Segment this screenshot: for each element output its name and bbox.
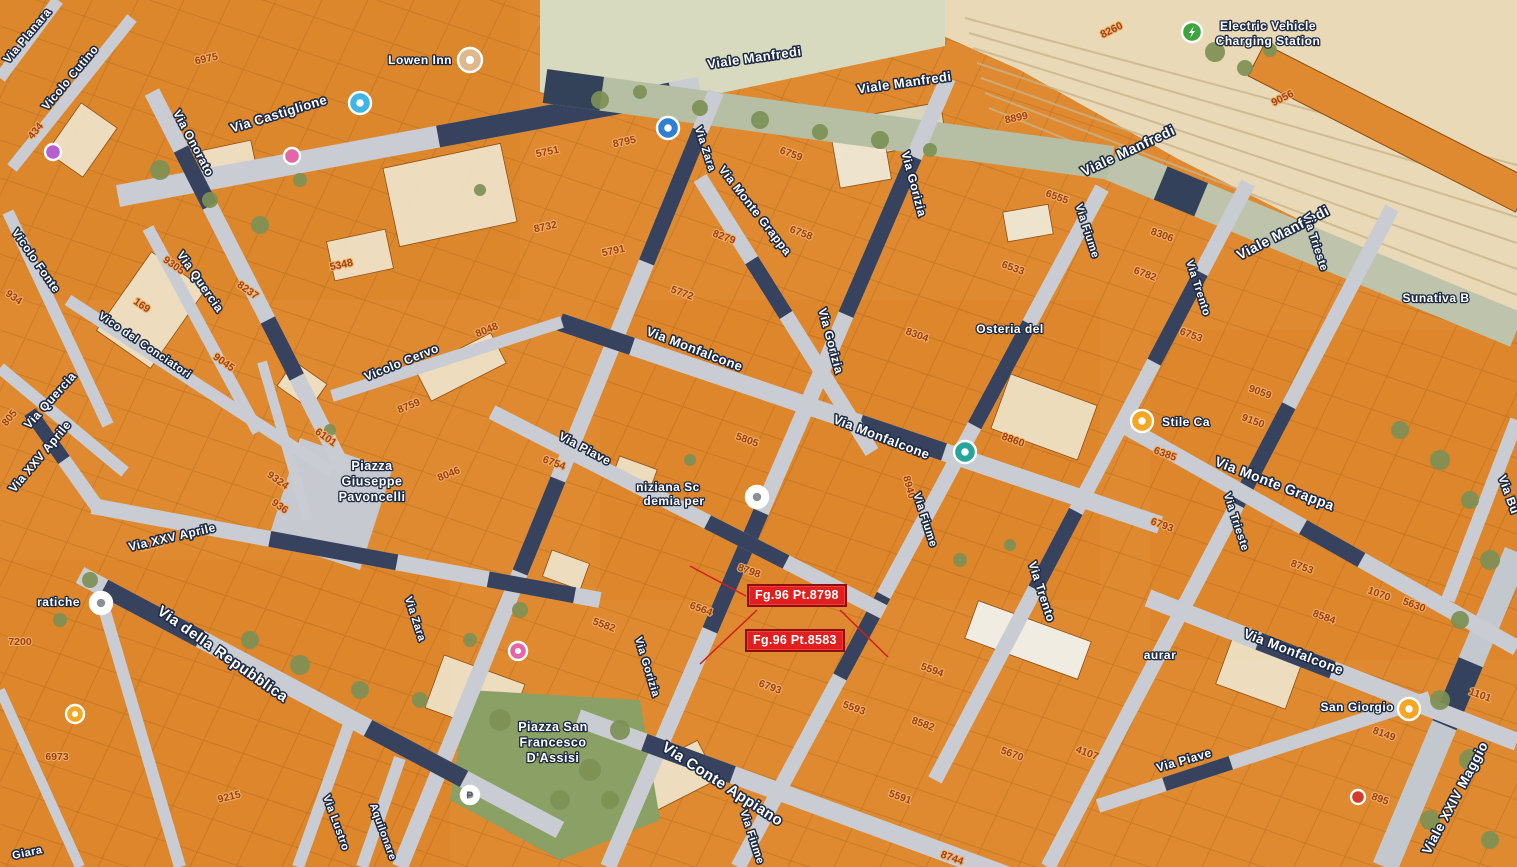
tree — [1451, 611, 1469, 629]
ev-charging-station-label: Charging Station — [1216, 34, 1321, 48]
poi-icon-san-giorgio[interactable] — [1398, 698, 1420, 720]
tree — [633, 85, 647, 99]
tree — [53, 613, 67, 627]
poi-label-sunativa-bb[interactable]: Sunativa B — [1402, 291, 1469, 305]
poi-label-stile-ca[interactable]: Stile Ca — [1162, 415, 1210, 429]
tree — [1004, 539, 1016, 551]
poi-label-ratiche[interactable]: ratiche — [37, 595, 80, 609]
poi-icon-poi-pink-north[interactable] — [284, 148, 300, 164]
tree — [812, 124, 828, 140]
tree — [610, 720, 630, 740]
poi-icon-poi-pink-south[interactable] — [509, 642, 527, 660]
tree — [202, 192, 218, 208]
poi-label-lowen-inn[interactable]: Lowen Inn — [388, 53, 452, 67]
tree — [684, 454, 696, 466]
tree — [923, 143, 937, 157]
tree — [751, 111, 769, 129]
piazza-san-francesco-dassisi: D'Assisi — [527, 751, 580, 765]
piazza-giuseppe-pavoncelli: Pavoncelli — [339, 490, 406, 504]
road-shadow — [545, 86, 602, 94]
poi-icon-poi-purple[interactable] — [45, 144, 61, 160]
tree — [251, 216, 269, 234]
poi-label-aurar[interactable]: aurar — [1144, 648, 1177, 662]
tree — [550, 790, 570, 810]
tree — [1481, 831, 1499, 849]
parcel-number-7200: 7200 — [8, 636, 32, 648]
poi-icon-accademia[interactable] — [746, 486, 768, 508]
tree — [579, 759, 601, 781]
poi-icon-lowen-inn[interactable] — [458, 48, 482, 72]
poi-label-osteria-del[interactable]: Osteria del — [976, 322, 1044, 336]
poi-label-accademia[interactable]: demia per — [643, 494, 704, 508]
tree — [82, 572, 98, 588]
poi-icon-poi-teal[interactable] — [954, 441, 976, 463]
tree — [1237, 60, 1253, 76]
tree — [1480, 550, 1500, 570]
piazza-san-francesco-dassisi: Francesco — [519, 736, 586, 750]
tree — [1430, 450, 1450, 470]
piazza-giuseppe-pavoncelli: Piazza — [351, 459, 393, 473]
road-shadow — [1161, 183, 1202, 200]
tree — [412, 692, 428, 708]
cadastral-highlight-label-8583[interactable]: Fg.96 Pt.8583 — [745, 629, 845, 652]
tree — [351, 681, 369, 699]
poi-icon-poi-red-dot[interactable] — [1351, 790, 1365, 804]
parking-glyph: P — [466, 791, 473, 802]
tree — [474, 184, 486, 196]
map-canvas[interactable]: 6975879557518732579153488279675967585772… — [0, 0, 1517, 867]
poi-icon-poi-blue-pin[interactable] — [657, 117, 679, 139]
poi-icon-ev-charging-pin[interactable] — [1182, 22, 1202, 42]
piazza-san-francesco-dassisi: Piazza San — [518, 720, 588, 734]
poi-label-accademia[interactable]: niziana Sc — [636, 480, 700, 494]
piazza-giuseppe-pavoncelli: Giuseppe — [342, 475, 403, 489]
tree — [489, 709, 511, 731]
tree — [1430, 690, 1450, 710]
tree — [1391, 421, 1409, 439]
tree — [293, 173, 307, 187]
parcel-number-6973: 6973 — [45, 751, 69, 763]
poi-icon-poi-orange-west[interactable] — [66, 705, 84, 723]
tree — [1461, 491, 1479, 509]
cadastral-highlight-label-8798[interactable]: Fg.96 Pt.8798 — [747, 584, 847, 607]
tree — [953, 553, 967, 567]
tree — [150, 160, 170, 180]
tree — [290, 655, 310, 675]
poi-label-san-giorgio[interactable]: San Giorgio — [1320, 700, 1394, 714]
poi-icon-transit-stop[interactable] — [349, 92, 371, 114]
ev-charging-station-label: Electric Vehicle — [1220, 19, 1316, 33]
tree — [241, 631, 259, 649]
satellite-cadastral-map[interactable]: 6975879557518732579153488279675967585772… — [0, 0, 1517, 867]
tree — [591, 91, 609, 109]
tree — [512, 602, 528, 618]
poi-icon-stile-ca[interactable] — [1131, 410, 1153, 432]
poi-icon-ratiche[interactable] — [90, 592, 112, 614]
tree — [871, 131, 889, 149]
tree — [601, 791, 619, 809]
tree — [692, 100, 708, 116]
tree — [463, 633, 477, 647]
